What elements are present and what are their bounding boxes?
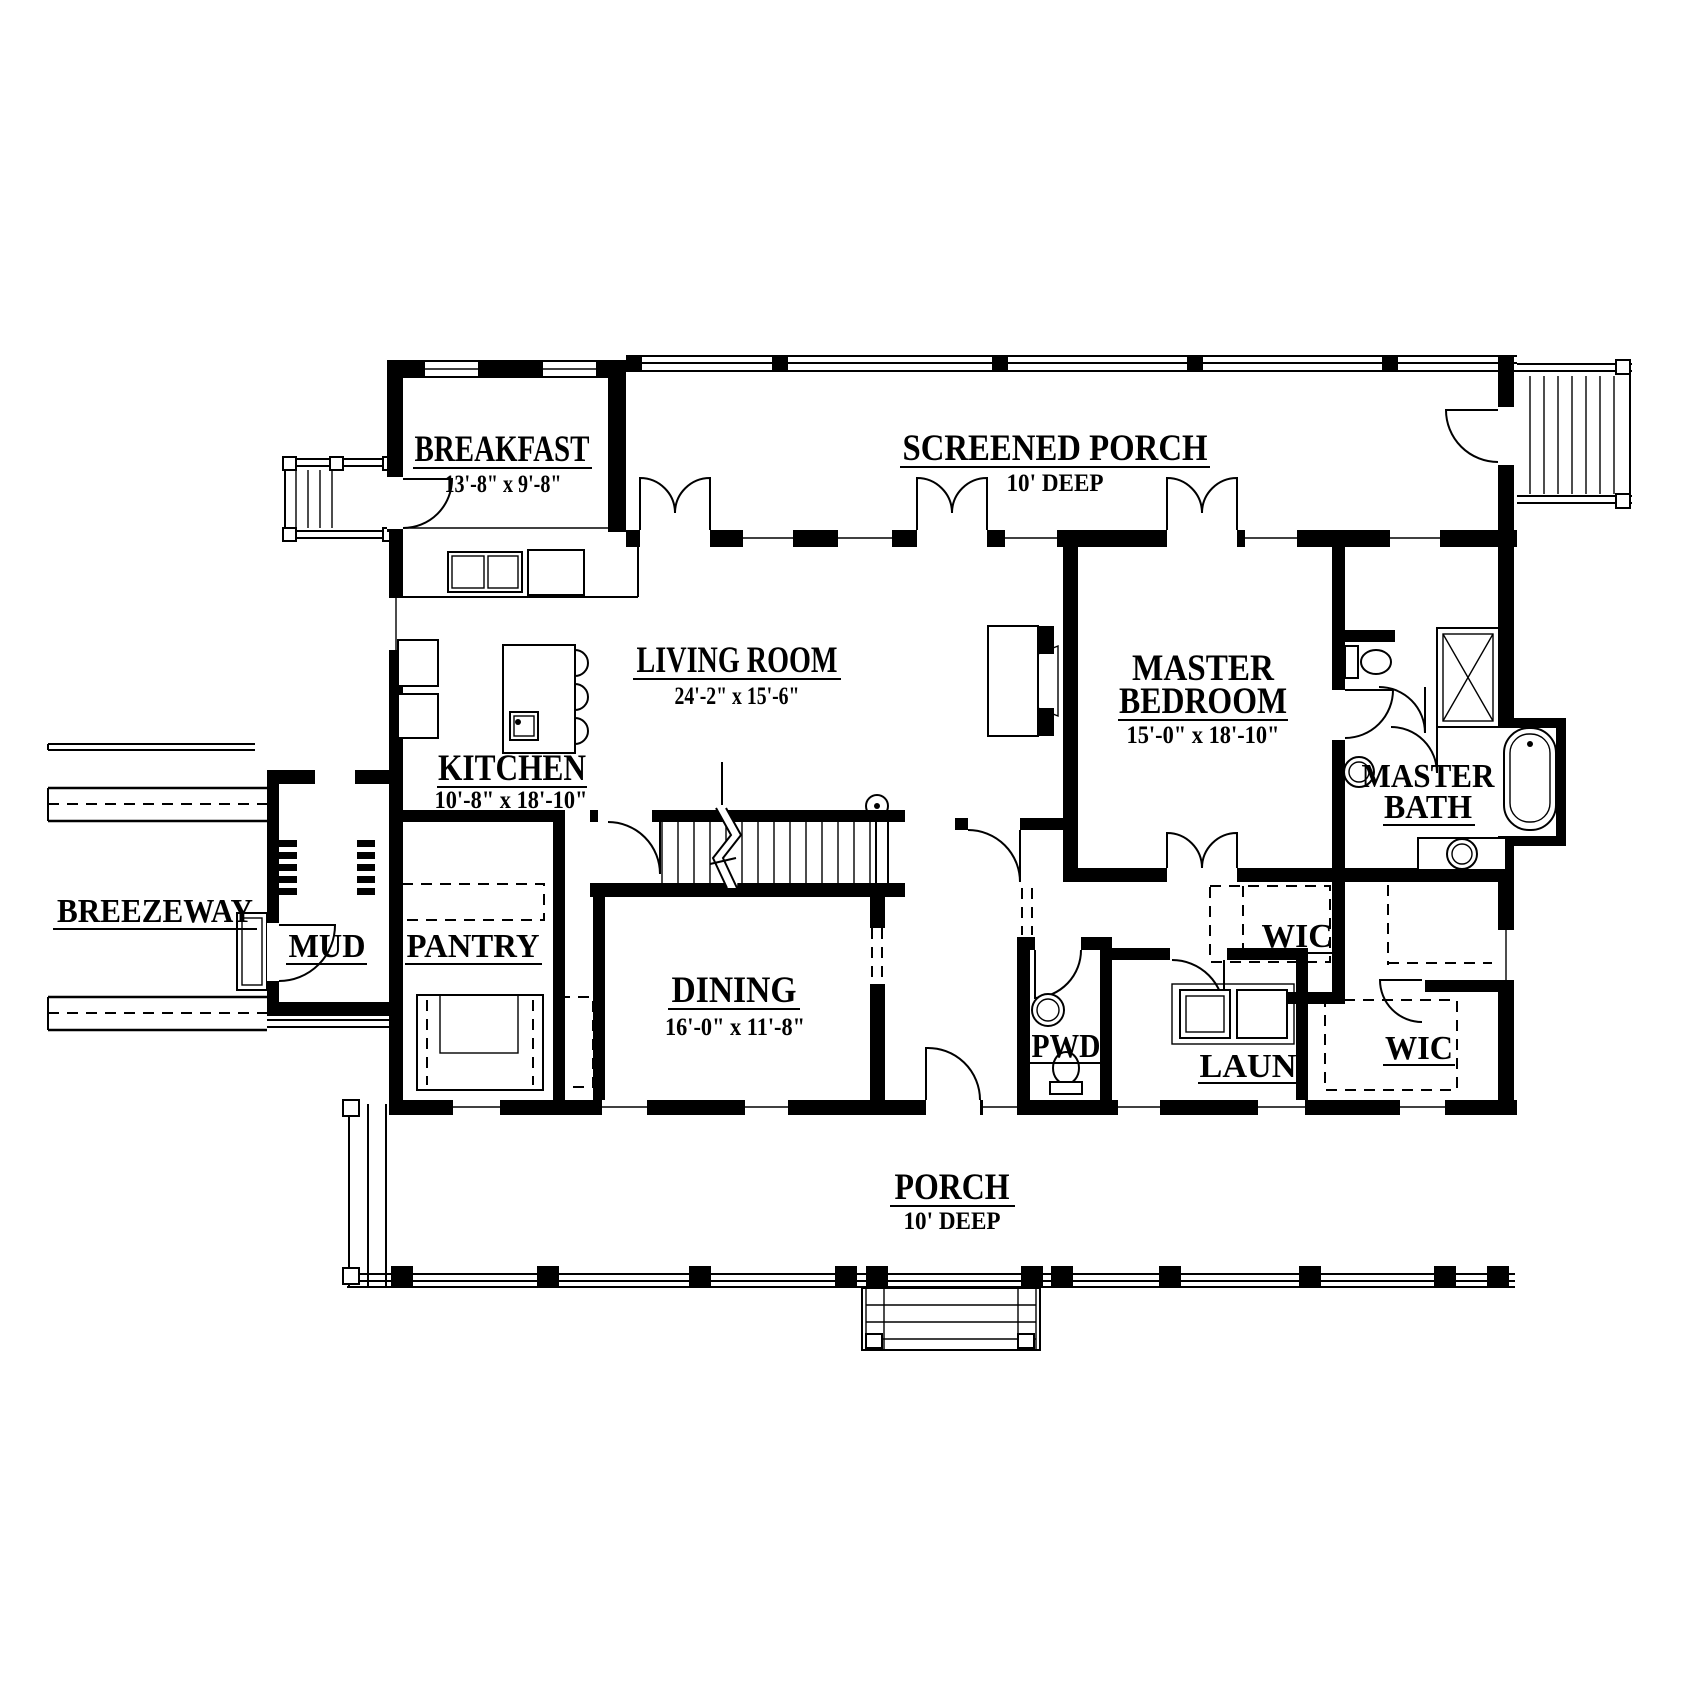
hall-closet bbox=[417, 995, 543, 1090]
room-label-pwd: PWD bbox=[1032, 1028, 1101, 1065]
room-label-living-room: LIVING ROOM bbox=[637, 640, 838, 681]
washer bbox=[1180, 990, 1230, 1038]
toilet-tank bbox=[1345, 646, 1358, 678]
room-label-master-bath-2: BATH bbox=[1384, 789, 1472, 826]
toilet-bowl bbox=[1361, 650, 1391, 674]
room-label-kitchen: KITCHEN bbox=[438, 748, 586, 789]
room-label-wic-lower: WIC bbox=[1385, 1030, 1453, 1067]
dryer bbox=[1237, 990, 1287, 1038]
range bbox=[528, 550, 584, 595]
room-label-dining: DINING bbox=[672, 970, 797, 1011]
kitchen-sink bbox=[448, 552, 522, 592]
room-label-mud: MUD bbox=[289, 928, 366, 965]
room-dims-porch: 10' DEEP bbox=[904, 1208, 1001, 1235]
floor-plan-drawing: BREAKFAST 13'-8" x 9'-8" SCREENED PORCH … bbox=[0, 0, 1696, 1700]
room-dims-screened-porch: 10' DEEP bbox=[1007, 470, 1104, 497]
room-label-breezeway: BREEZEWAY bbox=[57, 893, 253, 930]
room-label-laundry: LAUN bbox=[1200, 1048, 1297, 1085]
room-label-wic-upper: WIC bbox=[1262, 918, 1333, 955]
room-label-screened-porch: SCREENED PORCH bbox=[903, 428, 1208, 469]
room-label-master-bedroom-2: BEDROOM bbox=[1119, 681, 1287, 722]
room-label-pantry: PANTRY bbox=[407, 928, 540, 965]
room-dims-breakfast: 13'-8" x 9'-8" bbox=[445, 471, 562, 498]
room-dims-kitchen: 10'-8" x 18'-10" bbox=[435, 787, 588, 814]
room-dims-living-room: 24'-2" x 15'-6" bbox=[675, 683, 800, 710]
pwd-toilet-tank bbox=[1050, 1082, 1082, 1094]
pantry-cabinet bbox=[398, 694, 438, 738]
refrigerator bbox=[398, 640, 438, 686]
room-dims-master-bedroom: 15'-0" x 18'-10" bbox=[1127, 722, 1280, 749]
room-label-porch: PORCH bbox=[895, 1167, 1010, 1208]
floor-plan-page: BREAKFAST 13'-8" x 9'-8" SCREENED PORCH … bbox=[0, 0, 1696, 1700]
room-label-breakfast: BREAKFAST bbox=[415, 429, 590, 470]
room-dims-dining: 16'-0" x 11'-8" bbox=[665, 1014, 805, 1041]
